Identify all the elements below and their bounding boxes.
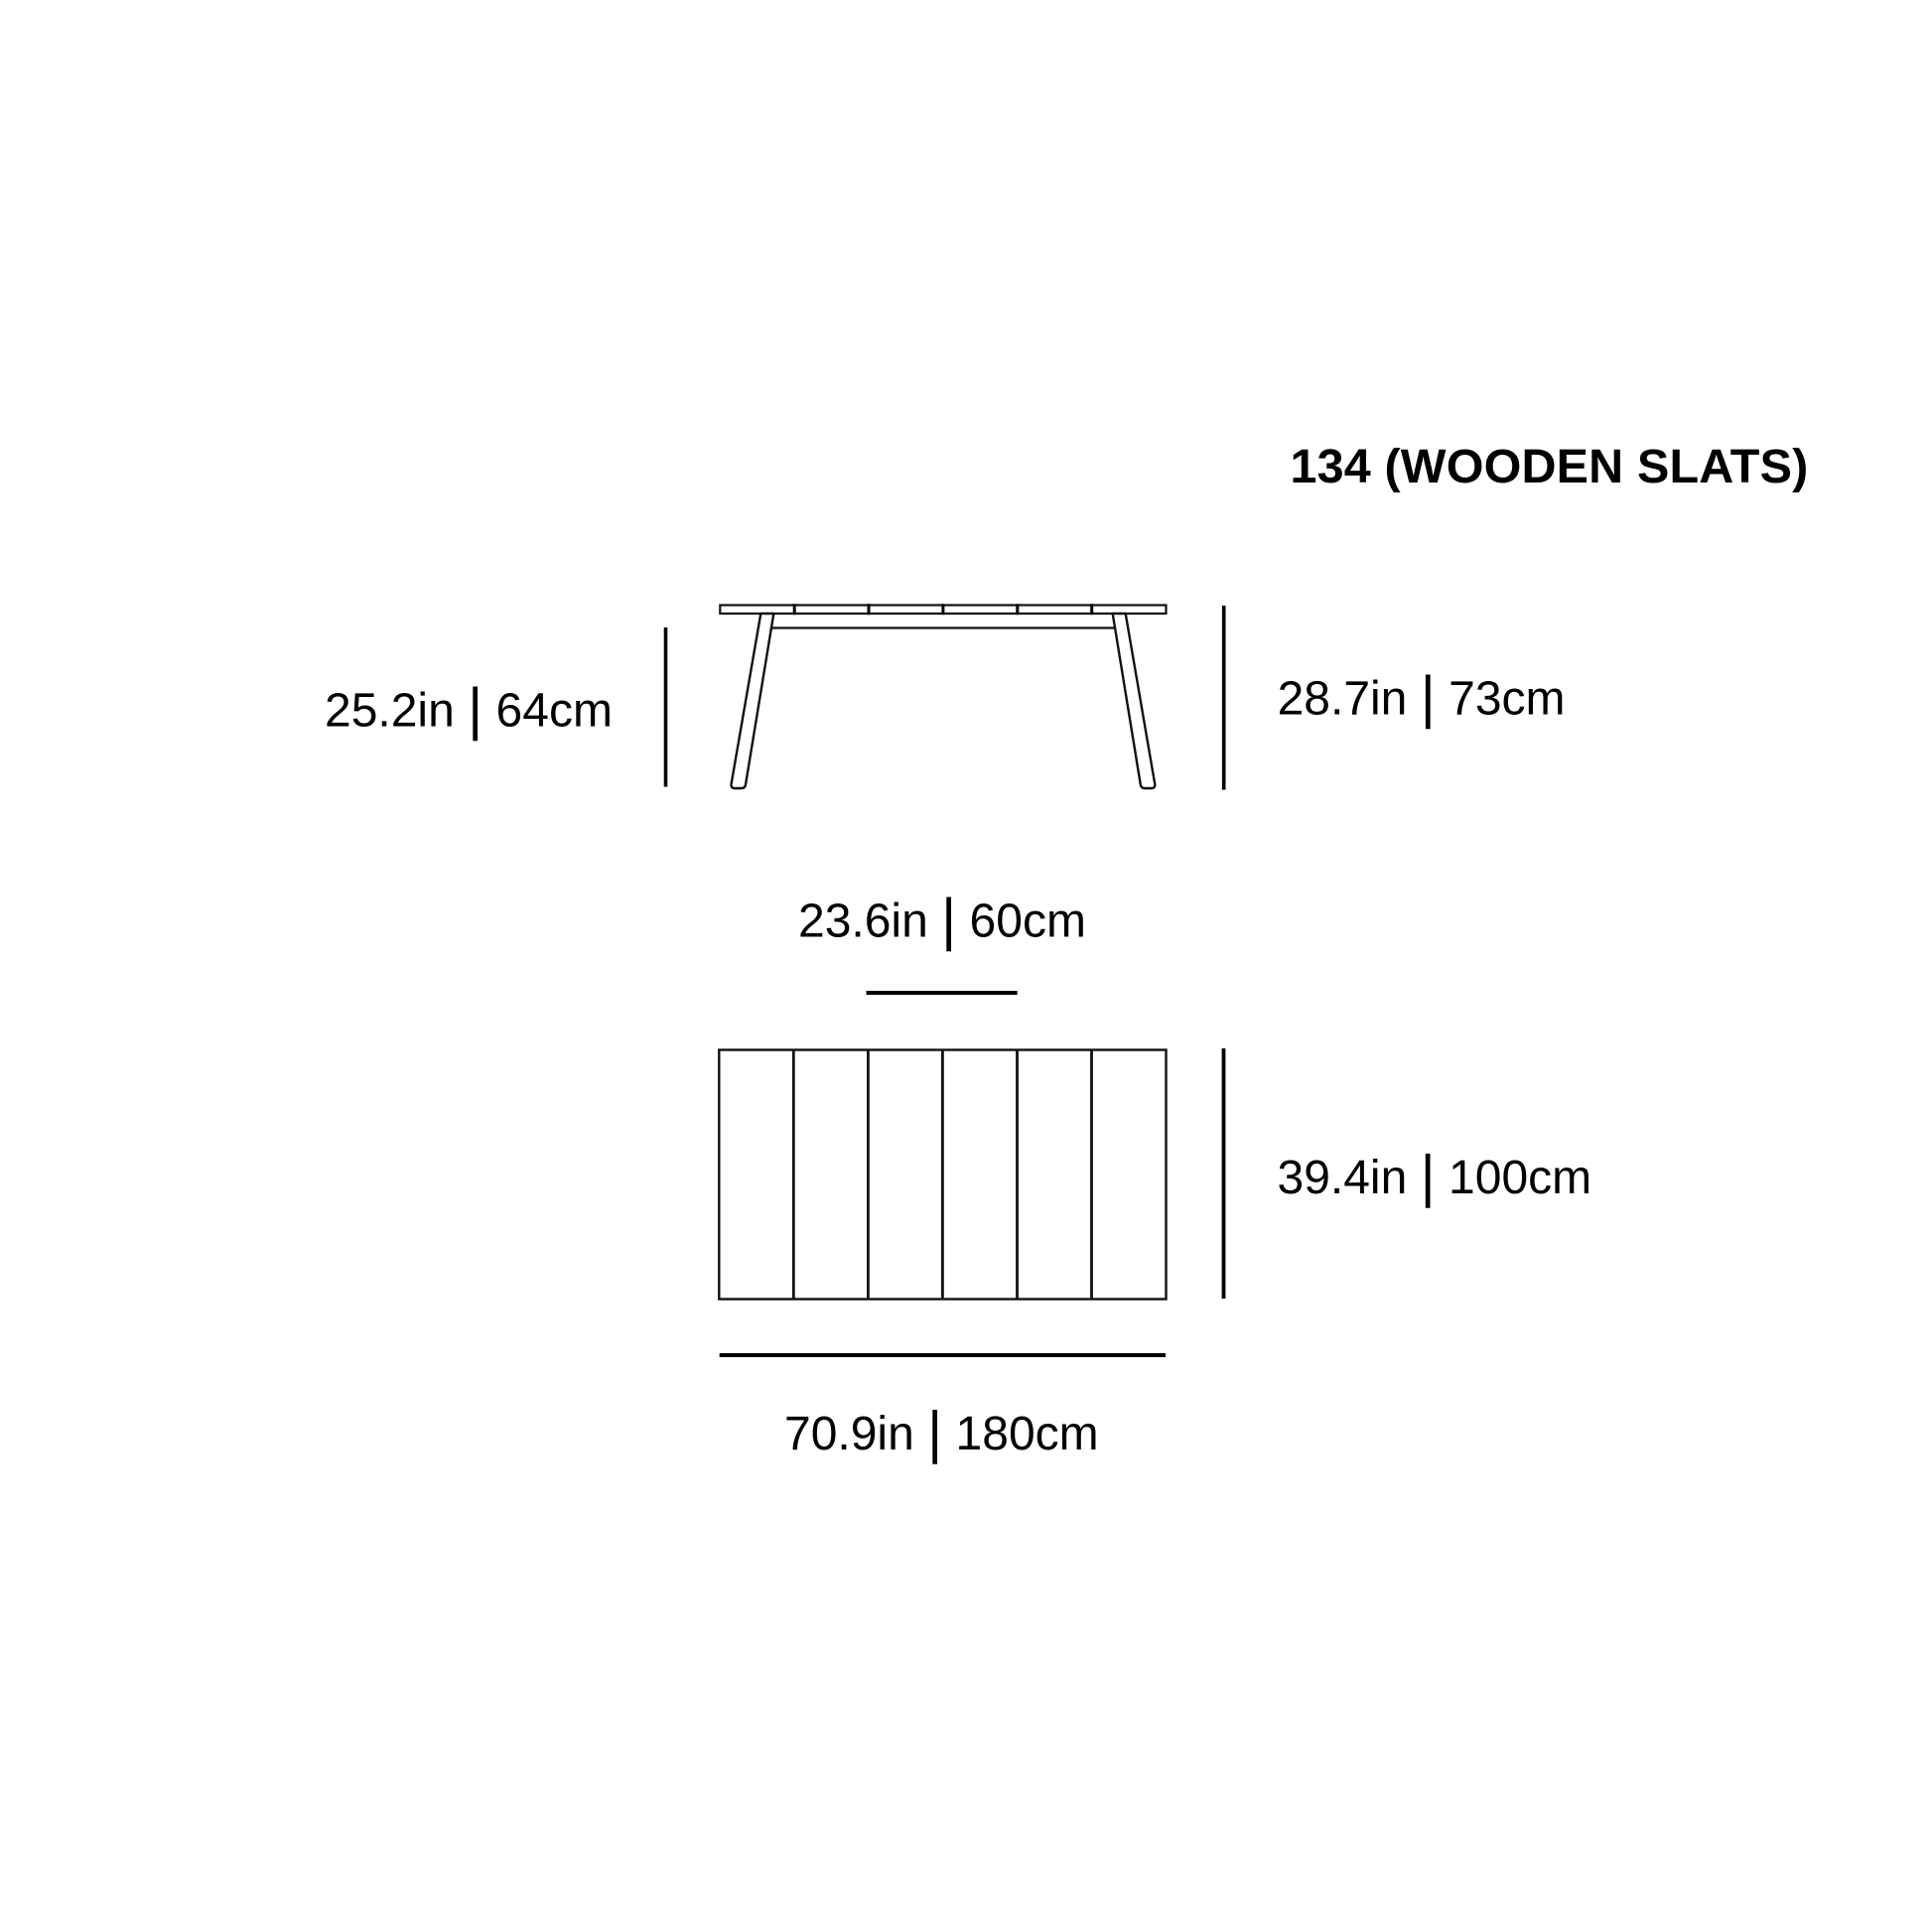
svg-text:25.2in | 64cm: 25.2in | 64cm bbox=[325, 677, 613, 742]
svg-text:23.6in | 60cm: 23.6in | 60cm bbox=[798, 888, 1086, 952]
svg-text:28.7in | 73cm: 28.7in | 73cm bbox=[1278, 665, 1566, 730]
svg-text:39.4in | 100cm: 39.4in | 100cm bbox=[1278, 1145, 1592, 1209]
svg-text:134 (WOODEN SLATS): 134 (WOODEN SLATS) bbox=[1291, 440, 1809, 493]
svg-text:70.9in | 180cm: 70.9in | 180cm bbox=[784, 1401, 1099, 1465]
